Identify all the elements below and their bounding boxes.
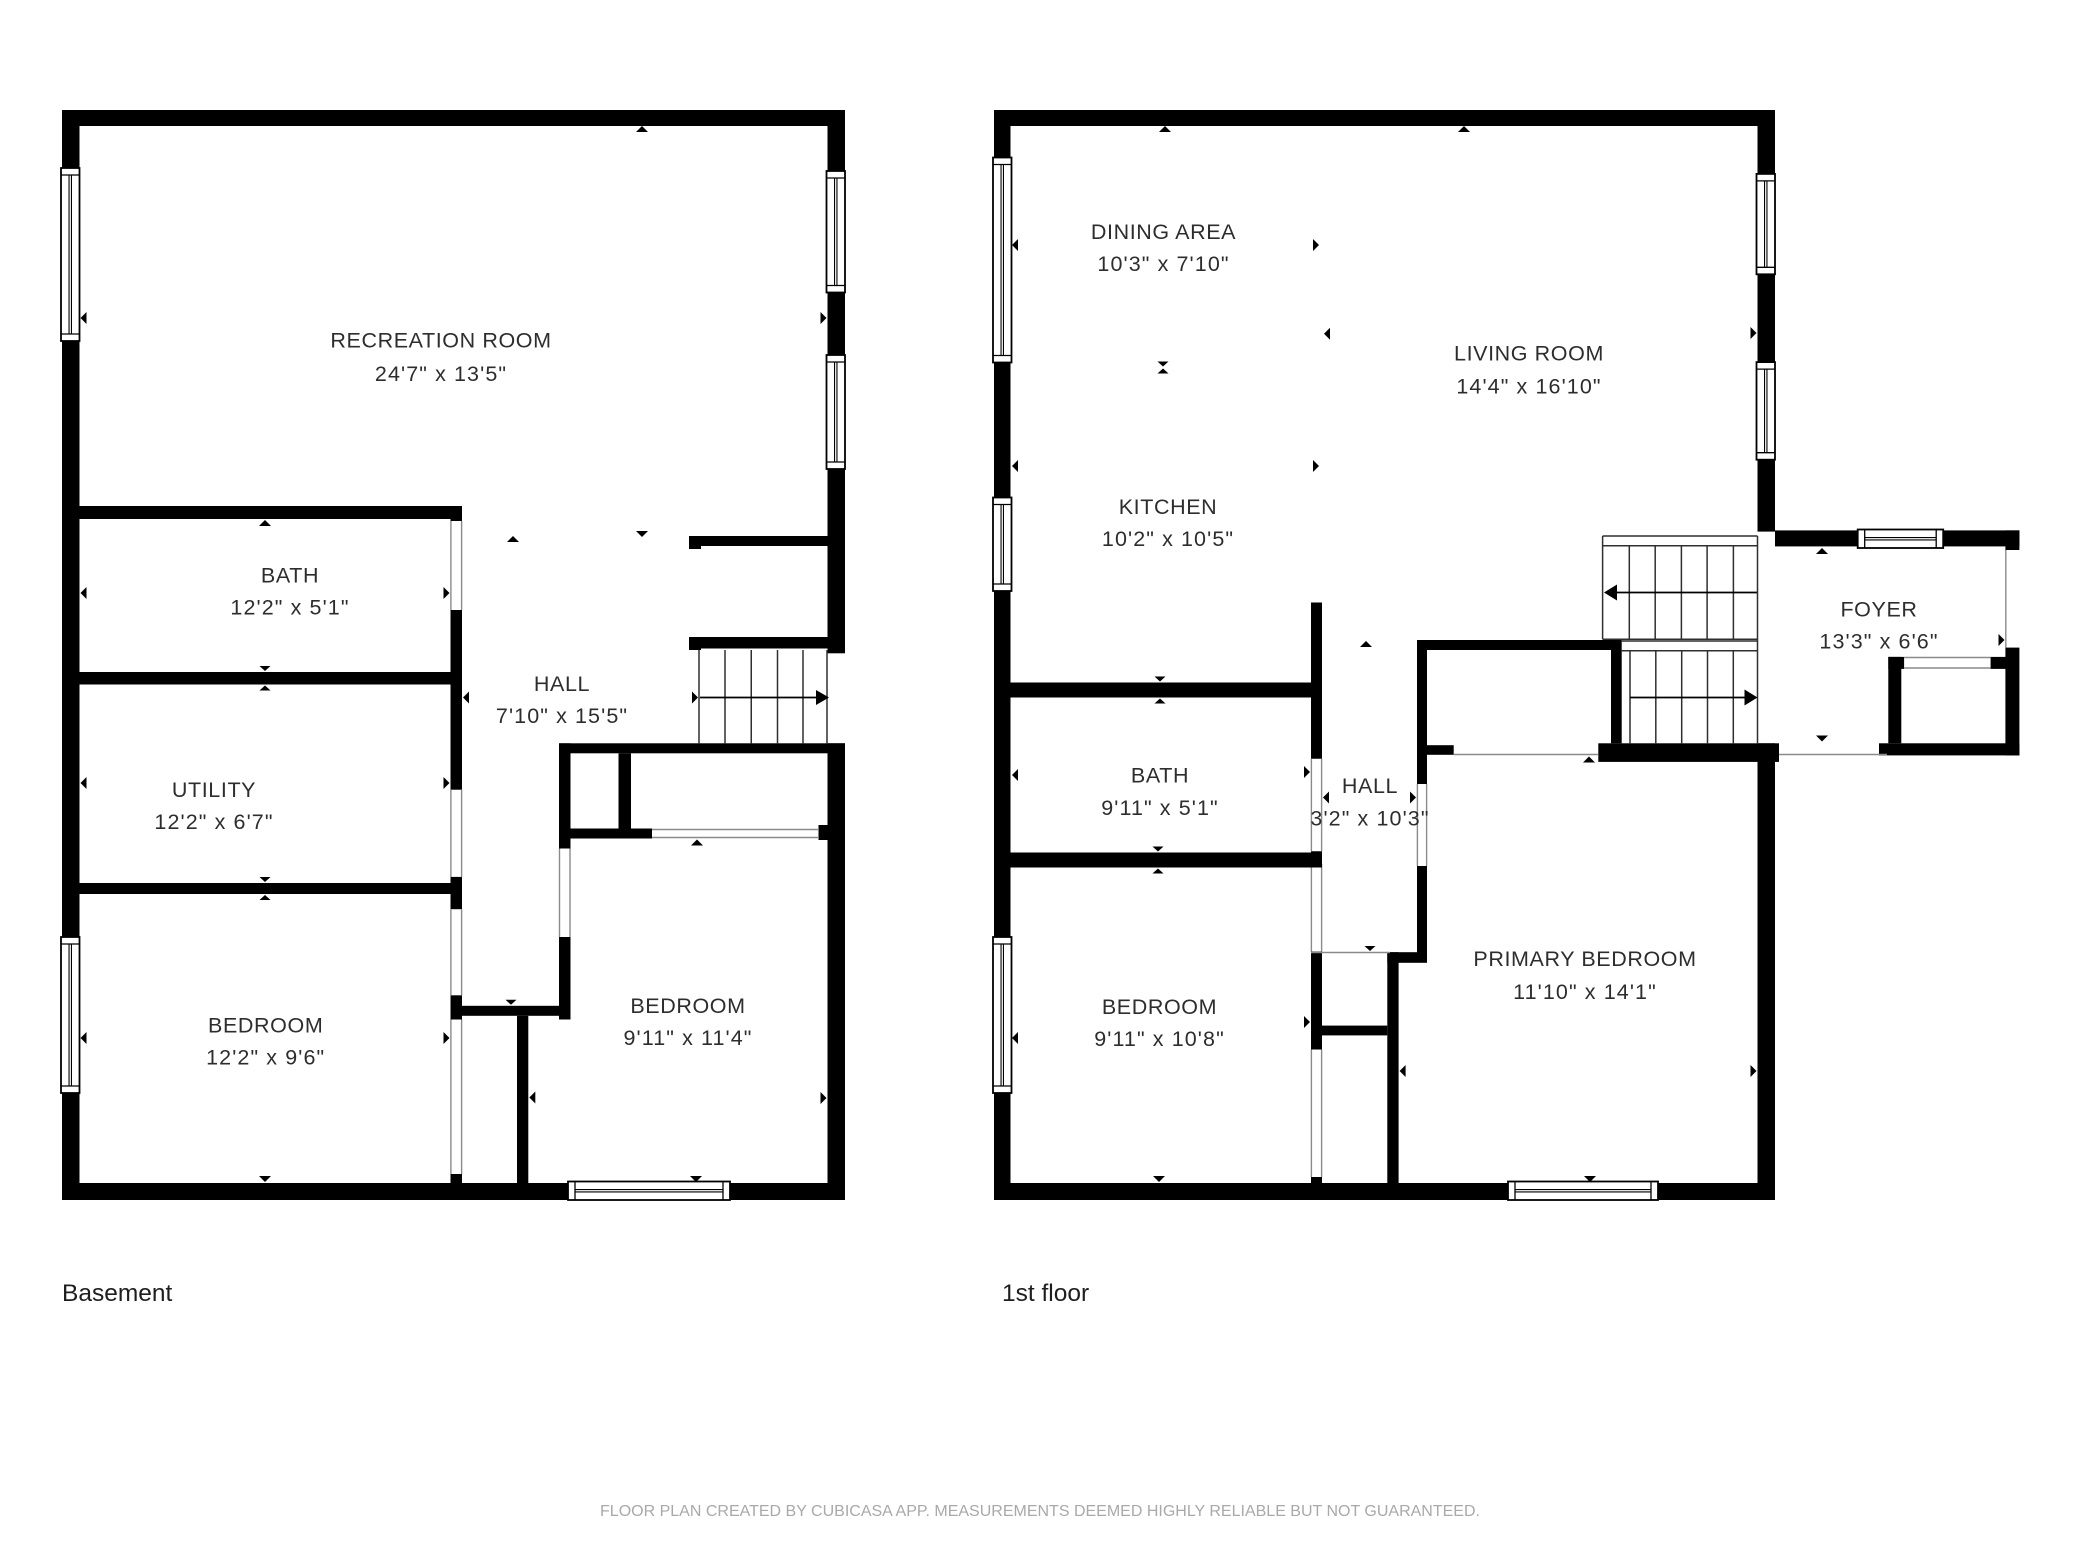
svg-text:BATH: BATH	[261, 564, 319, 588]
svg-text:HALL: HALL	[1342, 774, 1398, 798]
svg-text:KITCHEN: KITCHEN	[1119, 495, 1218, 519]
svg-text:9'11" x 11'4": 9'11" x 11'4"	[623, 1026, 752, 1050]
svg-text:BEDROOM: BEDROOM	[208, 1014, 323, 1038]
svg-text:13'3" x 6'6": 13'3" x 6'6"	[1819, 630, 1938, 654]
svg-text:10'3" x 7'10": 10'3" x 7'10"	[1097, 252, 1229, 276]
svg-text:LIVING ROOM: LIVING ROOM	[1454, 342, 1604, 366]
svg-text:9'11" x 10'8": 9'11" x 10'8"	[1094, 1027, 1225, 1051]
svg-text:1st floor: 1st floor	[1002, 1280, 1089, 1307]
svg-text:UTILITY: UTILITY	[172, 778, 256, 802]
svg-text:PRIMARY BEDROOM: PRIMARY BEDROOM	[1473, 947, 1696, 971]
svg-text:BEDROOM: BEDROOM	[630, 994, 745, 1018]
svg-text:12'2" x 6'7": 12'2" x 6'7"	[154, 810, 273, 834]
svg-text:12'2" x 5'1": 12'2" x 5'1"	[230, 596, 349, 620]
svg-text:9'11" x 5'1": 9'11" x 5'1"	[1101, 796, 1219, 820]
svg-text:BATH: BATH	[1131, 764, 1189, 788]
svg-text:DINING AREA: DINING AREA	[1091, 220, 1236, 244]
svg-text:7'10" x 15'5": 7'10" x 15'5"	[496, 704, 628, 728]
svg-text:12'2" x 9'6": 12'2" x 9'6"	[206, 1046, 325, 1070]
svg-text:BEDROOM: BEDROOM	[1102, 995, 1217, 1019]
svg-text:FOYER: FOYER	[1840, 598, 1917, 622]
svg-text:24'7" x 13'5": 24'7" x 13'5"	[375, 362, 507, 386]
svg-text:3'2" x 10'3": 3'2" x 10'3"	[1310, 807, 1429, 831]
svg-text:RECREATION ROOM: RECREATION ROOM	[330, 329, 551, 353]
svg-text:FLOOR PLAN CREATED BY CUBICASA: FLOOR PLAN CREATED BY CUBICASA APP. MEAS…	[600, 1503, 1480, 1520]
svg-text:11'10" x 14'1": 11'10" x 14'1"	[1513, 980, 1657, 1004]
svg-text:14'4" x 16'10": 14'4" x 16'10"	[1456, 375, 1601, 399]
svg-text:Basement: Basement	[62, 1280, 173, 1307]
svg-text:10'2" x 10'5": 10'2" x 10'5"	[1102, 527, 1234, 551]
svg-text:HALL: HALL	[534, 672, 590, 696]
